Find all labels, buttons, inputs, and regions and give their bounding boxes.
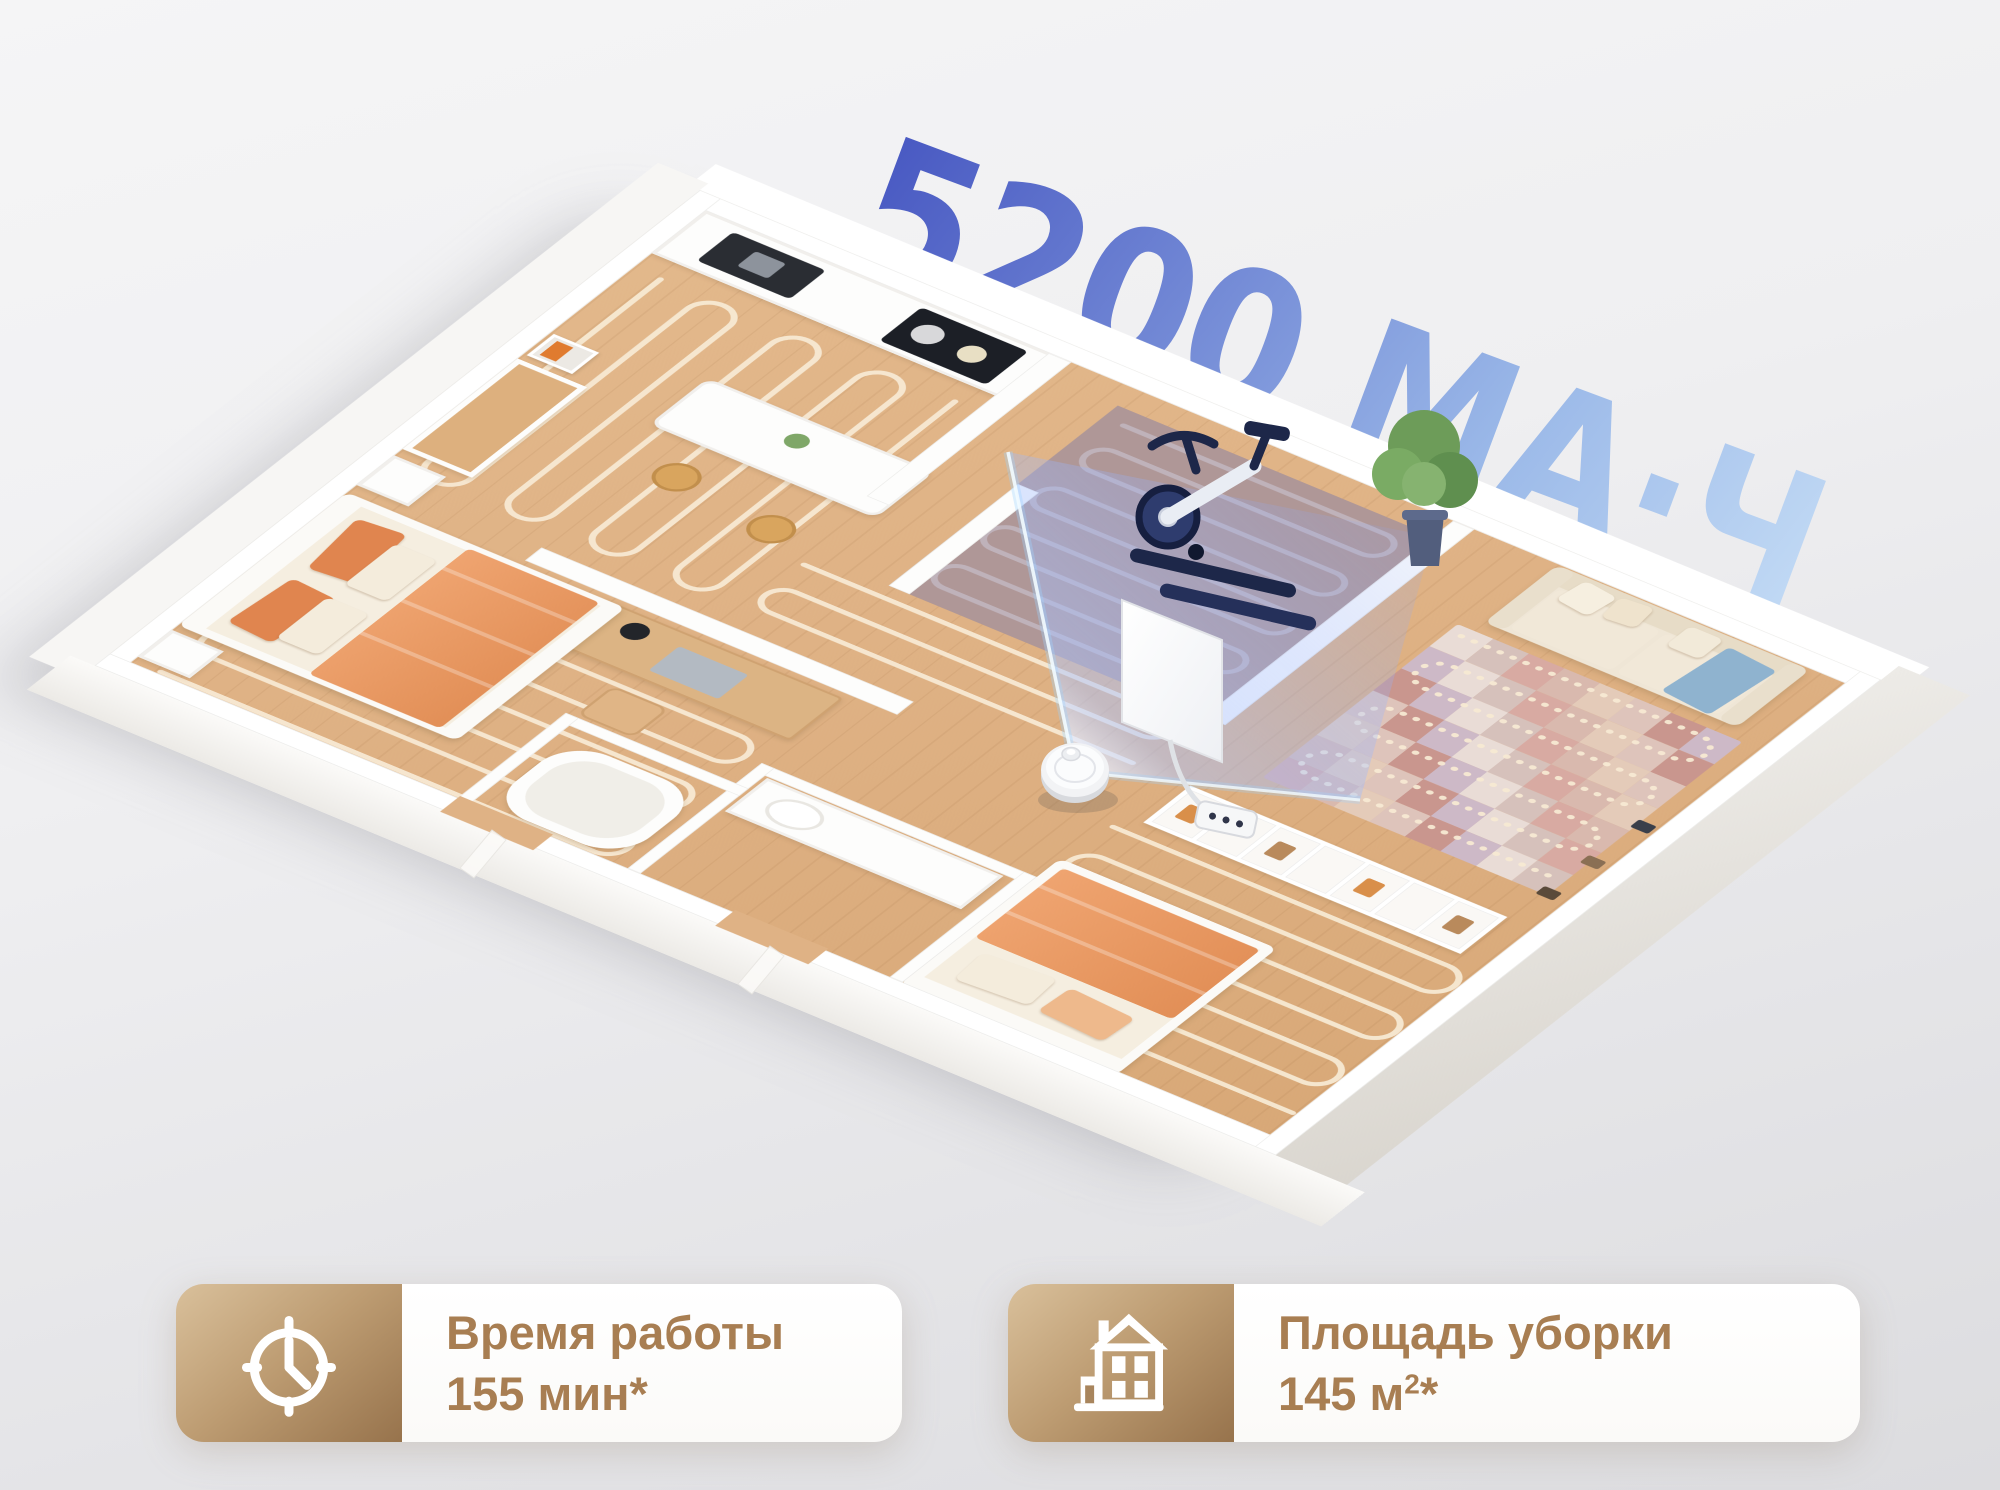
- runtime-label: Время работы: [446, 1302, 902, 1363]
- shelf-item: [1352, 878, 1386, 898]
- table-plant: [779, 431, 815, 452]
- desk-lamp: [614, 619, 656, 643]
- faucet: [737, 251, 787, 279]
- art: [540, 341, 574, 362]
- shelf-item: [1174, 804, 1208, 824]
- runtime-icon-box: [176, 1284, 402, 1442]
- runtime-stat-badge: Время работы 155 мин*: [176, 1284, 902, 1442]
- area-label: Площадь уборки: [1278, 1302, 1860, 1363]
- runtime-value: 155 мин*: [446, 1363, 902, 1424]
- pot: [904, 321, 951, 348]
- shelf-item: [1441, 915, 1475, 935]
- area-stat-badge: Площадь уборки 145 м2*: [1008, 1284, 1860, 1442]
- shelf-item: [1263, 841, 1297, 861]
- house-icon: [1065, 1307, 1177, 1419]
- area-text: Площадь уборки 145 м2*: [1234, 1284, 1860, 1442]
- clock-icon: [233, 1307, 345, 1419]
- runtime-text: Время работы 155 мин*: [402, 1284, 902, 1442]
- pot: [951, 342, 993, 366]
- hero-banner: 5200 МА·Ч: [0, 0, 2000, 1490]
- apartment-floor-plan: [95, 190, 1882, 1155]
- area-value: 145 м2*: [1278, 1363, 1860, 1424]
- area-icon-box: [1008, 1284, 1234, 1442]
